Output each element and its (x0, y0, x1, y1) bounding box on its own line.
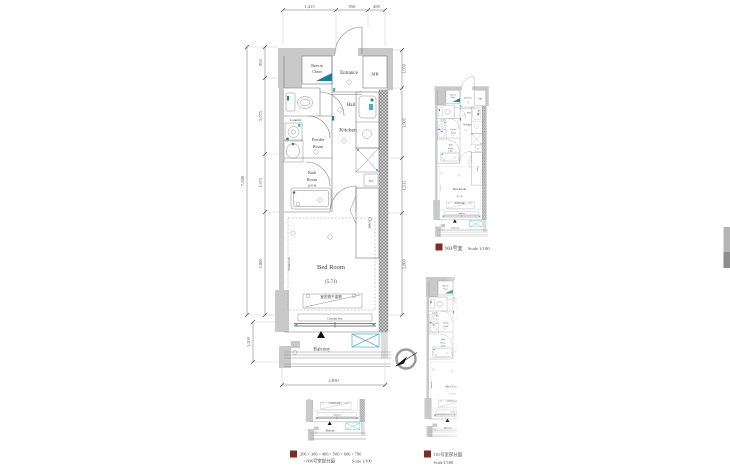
dim-right-2: 1,905 (402, 117, 408, 128)
crop-fade-solid (472, 268, 488, 446)
dim-top-1: 1,415 (304, 4, 315, 10)
caption-904: 904号室 Scale 1/100 (436, 244, 491, 252)
mini-floor-plan-904 (433, 76, 488, 236)
caption-101-scale: Scale 1/100 (434, 460, 454, 465)
dim-right-3: 1,515 (402, 180, 408, 191)
dim-left-3: 1,575 (258, 177, 264, 188)
caption-206-806-line1: 206・306・406・506・606・706 (300, 452, 362, 457)
floor-plan-sheet: MB Laundry (0, 0, 730, 470)
edge-plan-fragment (724, 227, 730, 268)
dim-top-2: 950 (349, 4, 357, 9)
dim-right-4: 2,800 (402, 258, 408, 269)
caption-206-806-line2: ・806号室部分図 (302, 458, 336, 465)
caption-marker-206-806 (290, 451, 297, 458)
crop-fade (444, 268, 474, 446)
dim-right-1: 1,050 (402, 63, 408, 74)
caption-206-806-scale: Scale 1/100 (352, 459, 372, 464)
dim-top-3: 485 (373, 4, 381, 9)
dim-left-2: 2,075 (258, 110, 264, 121)
caption-101-label: 101号室部分図 (434, 451, 463, 458)
caption-206-806: 206・306・406・506・606・706 ・806号室部分図 Scale … (290, 451, 372, 465)
caption-marker-904 (436, 244, 443, 251)
caption-904-label: 904号室 (445, 245, 463, 252)
dim-left-1: 850 (258, 58, 263, 65)
north-arrow (395, 350, 417, 369)
main-floor-plan (275, 27, 393, 368)
dim-bottom-width: 2,850 (328, 378, 339, 384)
caption-marker-101 (424, 451, 431, 458)
dim-left-overall: 7,300 (240, 175, 246, 186)
dim-balcony-height: 1,200 (246, 336, 252, 347)
dim-left-4: 2,800 (258, 258, 264, 269)
caption-904-scale: Scale 1/100 (468, 246, 490, 251)
caption-101: 101号室部分図 Scale 1/100 (424, 451, 463, 465)
